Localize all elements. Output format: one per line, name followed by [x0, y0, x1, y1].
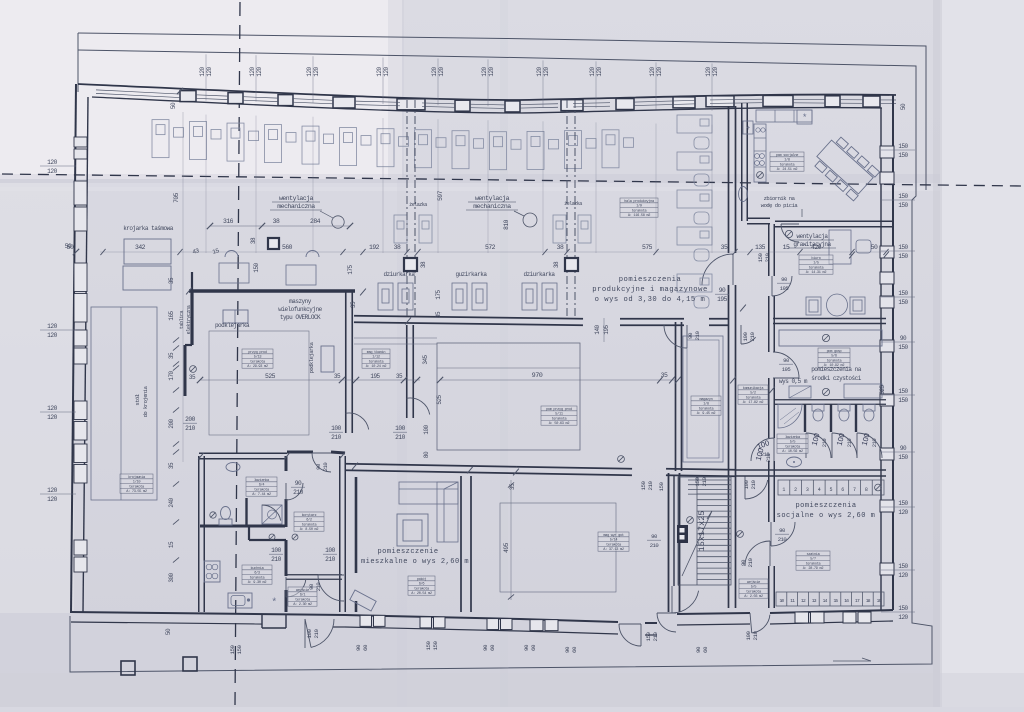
svg-text:195: 195 [370, 373, 380, 380]
svg-text:50: 50 [900, 103, 907, 110]
svg-text:elektryczna: elektryczna [186, 305, 192, 334]
svg-text:120: 120 [898, 614, 908, 621]
svg-text:210: 210 [271, 556, 281, 563]
svg-text:210: 210 [331, 434, 341, 441]
svg-text:A: 50.63 m2: A: 50.63 m2 [549, 422, 570, 426]
svg-text:2: 2 [794, 487, 797, 493]
svg-text:170: 170 [168, 370, 175, 380]
svg-text:195: 195 [782, 366, 791, 373]
svg-text:210: 210 [778, 536, 788, 543]
svg-text:podklejarka: podklejarka [308, 341, 315, 373]
svg-text:50: 50 [67, 244, 74, 251]
svg-text:A: 2.03 m2: A: 2.03 m2 [744, 595, 763, 599]
svg-text:wodę do picia: wodę do picia [761, 202, 799, 209]
svg-text:210: 210 [313, 629, 320, 639]
svg-text:100: 100 [395, 425, 405, 432]
svg-text:210: 210 [325, 556, 335, 563]
svg-text:5/6: 5/6 [831, 354, 837, 359]
svg-text:60: 60 [362, 644, 369, 651]
svg-text:120: 120 [47, 332, 57, 339]
svg-text:120: 120 [249, 66, 256, 76]
svg-text:łazienka: łazienka [785, 435, 801, 440]
svg-text:guzirkarka: guzirkarka [455, 271, 487, 278]
svg-text:krojarka taśmowa: krojarka taśmowa [123, 225, 174, 232]
svg-text:150: 150 [898, 193, 908, 200]
svg-text:150: 150 [898, 253, 908, 260]
svg-text:środki czystości: środki czystości [811, 375, 862, 382]
svg-text:pokój: pokój [417, 577, 426, 582]
svg-text:210: 210 [749, 332, 756, 342]
svg-text:150: 150 [645, 632, 652, 642]
svg-text:300: 300 [168, 572, 175, 582]
svg-text:240: 240 [168, 497, 175, 507]
svg-text:*: * [802, 113, 807, 123]
svg-text:5/5: 5/5 [751, 585, 757, 590]
svg-text:terakota: terakota [699, 406, 715, 411]
svg-text:597: 597 [437, 190, 444, 200]
svg-text:90: 90 [523, 644, 530, 651]
svg-text:150: 150 [229, 645, 236, 655]
svg-text:1/8: 1/8 [703, 402, 709, 407]
svg-text:120: 120 [481, 66, 488, 76]
svg-text:120: 120 [712, 66, 719, 76]
svg-text:korytarz: korytarz [302, 513, 317, 518]
svg-text:mechaniczna: mechaniczna [277, 203, 315, 210]
svg-text:stół: stół [134, 394, 141, 405]
svg-text:terakota: terakota [254, 487, 270, 492]
svg-text:A: 9.30 m2: A: 9.30 m2 [248, 581, 267, 585]
svg-text:210: 210 [395, 434, 405, 441]
svg-text:100: 100 [306, 629, 313, 639]
svg-text:maszyny: maszyny [289, 298, 312, 305]
svg-text:podklejarka: podklejarka [215, 322, 250, 329]
svg-text:150: 150 [898, 500, 908, 507]
svg-text:120: 120 [47, 414, 57, 421]
svg-text:15x17x25: 15x17x25 [697, 511, 707, 552]
svg-text:90: 90 [355, 644, 362, 651]
svg-text:terakota: terakota [302, 522, 318, 527]
svg-text:A: 73.55 m2: A: 73.55 m2 [126, 490, 147, 494]
svg-text:120: 120 [596, 66, 603, 76]
svg-text:342: 342 [135, 244, 146, 251]
svg-text:120: 120 [438, 66, 445, 76]
svg-text:1/8: 1/8 [784, 158, 790, 163]
svg-text:5/11: 5/11 [555, 412, 563, 417]
svg-text:90: 90 [740, 559, 747, 566]
svg-text:A: 29.93 m2: A: 29.93 m2 [247, 365, 268, 369]
svg-text:705: 705 [173, 192, 180, 202]
svg-text:terakota: terakota [806, 561, 822, 566]
svg-text:210: 210 [185, 425, 195, 432]
svg-text:120: 120 [376, 66, 383, 76]
svg-text:120: 120 [47, 487, 57, 494]
svg-text:90: 90 [900, 335, 907, 342]
svg-text:120: 120 [313, 66, 320, 76]
svg-text:5: 5 [829, 487, 832, 493]
svg-text:970: 970 [532, 372, 543, 380]
svg-text:90: 90 [687, 332, 694, 339]
svg-text:210: 210 [652, 632, 659, 642]
svg-text:3: 3 [806, 487, 809, 493]
svg-text:90: 90 [900, 445, 907, 452]
svg-text:175: 175 [347, 264, 354, 274]
svg-text:195: 195 [780, 285, 789, 292]
svg-text:200: 200 [185, 416, 195, 423]
svg-text:wielofunkcyjne: wielofunkcyjne [278, 306, 322, 313]
svg-text:210: 210 [701, 477, 708, 487]
svg-text:150: 150 [640, 481, 647, 491]
svg-text:100: 100 [331, 425, 341, 432]
svg-text:120: 120 [898, 572, 908, 579]
svg-text:terakota: terakota [746, 589, 762, 594]
svg-text:kuchnia: kuchnia [251, 566, 265, 571]
svg-text:120: 120 [543, 66, 550, 76]
svg-text:typu OVERLOCK: typu OVERLOCK [280, 314, 321, 321]
svg-text:150: 150 [898, 244, 908, 251]
svg-text:90: 90 [295, 480, 302, 487]
svg-text:50: 50 [871, 244, 878, 251]
svg-text:8: 8 [865, 487, 868, 493]
svg-text:wejście: wejście [747, 580, 760, 585]
svg-text:120: 120 [47, 405, 57, 412]
svg-text:komunikacja: komunikacja [743, 386, 765, 391]
svg-text:120: 120 [199, 66, 206, 76]
svg-text:195: 195 [717, 296, 727, 303]
svg-text:150: 150 [236, 645, 243, 655]
svg-text:284: 284 [310, 218, 321, 225]
svg-text:A: 10.24 m2: A: 10.24 m2 [366, 365, 387, 369]
svg-text:socjalne o wys 2,60 m: socjalne o wys 2,60 m [777, 512, 876, 520]
svg-text:+: + [746, 125, 750, 133]
svg-text:6/6: 6/6 [419, 582, 425, 587]
svg-text:terakota: terakota [632, 208, 648, 213]
svg-text:pomieszczenie: pomieszczenie [377, 548, 438, 556]
svg-text:90: 90 [308, 584, 315, 590]
svg-text:495: 495 [503, 542, 510, 552]
svg-text:60: 60 [702, 646, 709, 653]
svg-text:210: 210 [322, 463, 329, 472]
svg-text:150: 150 [898, 454, 908, 461]
svg-text:terakota: terakota [785, 444, 801, 449]
svg-text:150: 150 [898, 143, 908, 150]
svg-text:150: 150 [898, 290, 908, 297]
svg-text:A: 116.58 m2: A: 116.58 m2 [628, 214, 650, 218]
svg-text:135: 135 [755, 244, 766, 251]
svg-text:1/10: 1/10 [133, 480, 141, 485]
svg-text:210: 210 [647, 481, 654, 491]
svg-text:5/5: 5/5 [790, 440, 796, 445]
svg-text:120: 120 [431, 66, 438, 76]
svg-text:150: 150 [898, 299, 908, 306]
svg-text:1/12: 1/12 [372, 355, 380, 360]
svg-text:magazyn: magazyn [700, 398, 713, 402]
svg-text:90: 90 [315, 464, 322, 470]
svg-text:210: 210 [846, 439, 853, 448]
svg-text:35: 35 [435, 311, 442, 318]
svg-text:50: 50 [170, 102, 177, 109]
svg-text:150: 150 [694, 477, 701, 487]
svg-text:A: 20.54 m2: A: 20.54 m2 [411, 592, 432, 596]
svg-text:wys 0,5 m: wys 0,5 m [779, 378, 808, 385]
svg-text:90: 90 [564, 646, 571, 653]
svg-text:210: 210 [871, 439, 878, 448]
svg-text:120: 120 [383, 66, 390, 76]
svg-text:produkcyjne i magazynowe: produkcyjne i magazynowe [592, 286, 708, 294]
svg-text:525: 525 [436, 394, 443, 404]
svg-text:60: 60 [489, 644, 496, 651]
svg-text:wentylacja: wentylacja [279, 195, 314, 202]
svg-text:6: 6 [841, 487, 844, 493]
svg-text:1/9: 1/9 [636, 204, 642, 209]
svg-text:A: 28.79 m2: A: 28.79 m2 [803, 567, 824, 571]
svg-text:pom gosp: pom gosp [827, 350, 842, 354]
svg-text:150: 150 [425, 641, 432, 651]
svg-text:terakota: terakota [250, 359, 266, 364]
svg-text:210: 210 [821, 439, 828, 448]
svg-text:35: 35 [168, 352, 175, 359]
svg-text:terakota: terakota [827, 358, 843, 363]
svg-text:pom socjalne: pom socjalne [776, 153, 798, 158]
svg-text:100: 100 [743, 480, 750, 490]
svg-text:A: 17.82 m2: A: 17.82 m2 [743, 401, 764, 405]
svg-text:6/3: 6/3 [254, 571, 260, 576]
svg-text:120: 120 [306, 66, 313, 76]
svg-text:A: 2.30 m2: A: 2.30 m2 [293, 603, 312, 607]
svg-text:120: 120 [649, 66, 656, 76]
svg-text:mag wyr got: mag wyr got [603, 533, 624, 538]
svg-text:120: 120 [589, 66, 596, 76]
svg-text:38: 38 [250, 237, 257, 244]
svg-text:210: 210 [761, 451, 770, 458]
svg-text:A: 14.31 m2: A: 14.31 m2 [806, 271, 827, 275]
svg-text:150: 150 [658, 482, 665, 492]
svg-text:szatnia: szatnia [807, 552, 821, 557]
svg-text:120: 120 [488, 66, 495, 76]
svg-text:150: 150 [253, 262, 260, 272]
svg-text:345: 345 [422, 354, 429, 364]
svg-text:120: 120 [656, 66, 663, 76]
svg-text:150: 150 [898, 397, 908, 404]
svg-text:terakota: terakota [780, 162, 796, 167]
svg-text:A: 9.45 m2: A: 9.45 m2 [697, 412, 716, 416]
svg-text:575: 575 [642, 244, 653, 251]
svg-text:terakota: terakota [129, 484, 145, 489]
svg-text:wentylacja: wentylacja [796, 233, 828, 240]
svg-text:terakota: terakota [809, 265, 825, 270]
svg-text:120: 120 [206, 66, 213, 76]
svg-text:195: 195 [603, 324, 610, 334]
svg-text:5/13: 5/13 [254, 355, 262, 360]
svg-text:120: 120 [47, 159, 57, 166]
svg-text:60: 60 [571, 646, 578, 653]
svg-text:terakota: terakota [414, 586, 430, 591]
svg-text:200: 200 [168, 418, 175, 428]
svg-text:38: 38 [394, 244, 401, 251]
svg-text:pom przyg prod: pom przyg prod [546, 407, 572, 412]
svg-text:terakota: terakota [746, 395, 762, 400]
svg-text:łazienka: łazienka [254, 478, 270, 483]
svg-text:mechaniczna: mechaniczna [473, 203, 511, 210]
svg-text:120: 120 [536, 66, 543, 76]
svg-text:15: 15 [168, 541, 175, 548]
svg-text:6/1: 6/1 [300, 593, 306, 598]
svg-text:210: 210 [747, 558, 754, 568]
svg-text:150: 150 [898, 563, 908, 570]
svg-text:420: 420 [811, 244, 822, 251]
svg-text:572: 572 [485, 244, 496, 251]
svg-text:pomieszczenia na: pomieszczenia na [811, 366, 862, 373]
svg-text:*: * [271, 597, 277, 609]
svg-text:150: 150 [757, 253, 764, 263]
svg-text:A: 24.51 m2: A: 24.51 m2 [777, 168, 798, 172]
svg-text:150: 150 [898, 605, 908, 612]
svg-text:100: 100 [271, 547, 281, 554]
svg-text:35: 35 [168, 277, 175, 284]
svg-text:38: 38 [557, 244, 564, 251]
svg-text:35: 35 [189, 374, 196, 381]
svg-text:525: 525 [265, 373, 276, 380]
svg-text:5/?: 5/? [810, 557, 816, 562]
svg-text:terakota: terakota [552, 416, 568, 421]
svg-text:150: 150 [898, 344, 908, 351]
svg-text:210: 210 [694, 331, 701, 341]
svg-text:38: 38 [420, 261, 427, 268]
svg-text:525: 525 [879, 384, 886, 394]
svg-text:175: 175 [435, 289, 442, 299]
svg-text:90: 90 [482, 644, 489, 651]
svg-text:mag tkanin: mag tkanin [367, 350, 386, 355]
svg-text:terakota: terakota [369, 359, 385, 364]
svg-text:192: 192 [369, 244, 380, 251]
svg-text:A: 10.56 m2: A: 10.56 m2 [782, 450, 803, 454]
svg-text:do krojenia: do krojenia [142, 385, 149, 417]
svg-text:100: 100 [325, 547, 335, 554]
svg-text:35: 35 [334, 373, 341, 380]
svg-text:o wys od 3,30 do 4,15 m: o wys od 3,30 do 4,15 m [595, 296, 706, 304]
svg-text:210: 210 [752, 631, 759, 641]
svg-text:15: 15 [783, 244, 790, 251]
svg-text:90: 90 [695, 646, 702, 653]
svg-text:50: 50 [165, 628, 172, 635]
svg-text:6/4: 6/4 [259, 483, 265, 488]
svg-text:terakota: terakota [250, 575, 266, 580]
svg-text:80: 80 [423, 451, 430, 458]
svg-text:165: 165 [168, 310, 175, 320]
svg-text:120: 120 [256, 66, 263, 76]
svg-text:100: 100 [423, 424, 430, 434]
svg-text:zbiornik na: zbiornik na [764, 195, 796, 202]
svg-text:35: 35 [396, 373, 403, 380]
svg-text:pomieszczenia: pomieszczenia [619, 276, 682, 284]
svg-text:biuro: biuro [811, 256, 820, 261]
svg-text:120: 120 [705, 66, 712, 76]
svg-text:pomieszczenia: pomieszczenia [795, 502, 856, 510]
svg-text:316: 316 [223, 218, 234, 225]
svg-text:A: 37.13 m2: A: 37.13 m2 [603, 548, 624, 552]
svg-text:4: 4 [818, 487, 821, 493]
svg-text:150: 150 [432, 641, 439, 651]
svg-text:wentylacja: wentylacja [475, 195, 510, 202]
svg-text:terakota: terakota [295, 597, 311, 602]
svg-text:dziurkarka: dziurkarka [383, 271, 415, 278]
svg-text:210: 210 [764, 253, 771, 263]
svg-text:35: 35 [509, 483, 516, 490]
svg-text:35: 35 [168, 462, 175, 469]
svg-text:140: 140 [594, 324, 601, 334]
svg-text:120: 120 [47, 496, 57, 503]
svg-text:60: 60 [530, 644, 537, 651]
svg-text:A: 8.50 m2: A: 8.50 m2 [300, 528, 319, 532]
svg-text:hala produkcyjna: hala produkcyjna [624, 199, 655, 204]
svg-text:żelazka: żelazka [409, 202, 427, 208]
svg-text:100: 100 [745, 631, 752, 641]
svg-text:35: 35 [721, 244, 728, 251]
svg-text:1: 1 [782, 487, 785, 493]
svg-text:210: 210 [750, 480, 757, 490]
svg-text:120: 120 [47, 168, 57, 175]
svg-text:560: 560 [282, 244, 293, 251]
svg-text:38: 38 [553, 261, 560, 268]
svg-text:35: 35 [350, 301, 357, 308]
svg-text:7: 7 [853, 487, 856, 493]
svg-text:krojownia: krojownia [128, 475, 146, 480]
svg-text:38: 38 [273, 218, 280, 225]
svg-text:6/2: 6/2 [306, 518, 312, 523]
svg-text:A: 7.44 m2: A: 7.44 m2 [252, 493, 271, 497]
svg-text:210: 210 [650, 542, 660, 549]
svg-text:1/5: 1/5 [813, 261, 819, 266]
svg-text:90: 90 [719, 287, 726, 294]
svg-text:150: 150 [898, 388, 908, 395]
svg-text:5/2: 5/2 [750, 391, 756, 396]
svg-text:mieszkalne o wys 2,60 m: mieszkalne o wys 2,60 m [361, 558, 469, 566]
svg-text:150: 150 [898, 152, 908, 159]
svg-text:120: 120 [898, 509, 908, 516]
svg-text:100: 100 [742, 332, 749, 342]
svg-text:210: 210 [293, 489, 303, 496]
svg-text:210: 210 [315, 583, 322, 592]
svg-text:dziurkarka: dziurkarka [523, 271, 555, 278]
svg-text:120: 120 [47, 323, 57, 330]
svg-text:terakota: terakota [606, 542, 622, 547]
svg-text:150: 150 [898, 202, 908, 209]
svg-text:tablica: tablica [179, 310, 185, 329]
svg-text:przyg prod: przyg prod [248, 350, 267, 355]
svg-text:5/14: 5/14 [610, 538, 618, 543]
svg-text:810: 810 [503, 219, 510, 229]
